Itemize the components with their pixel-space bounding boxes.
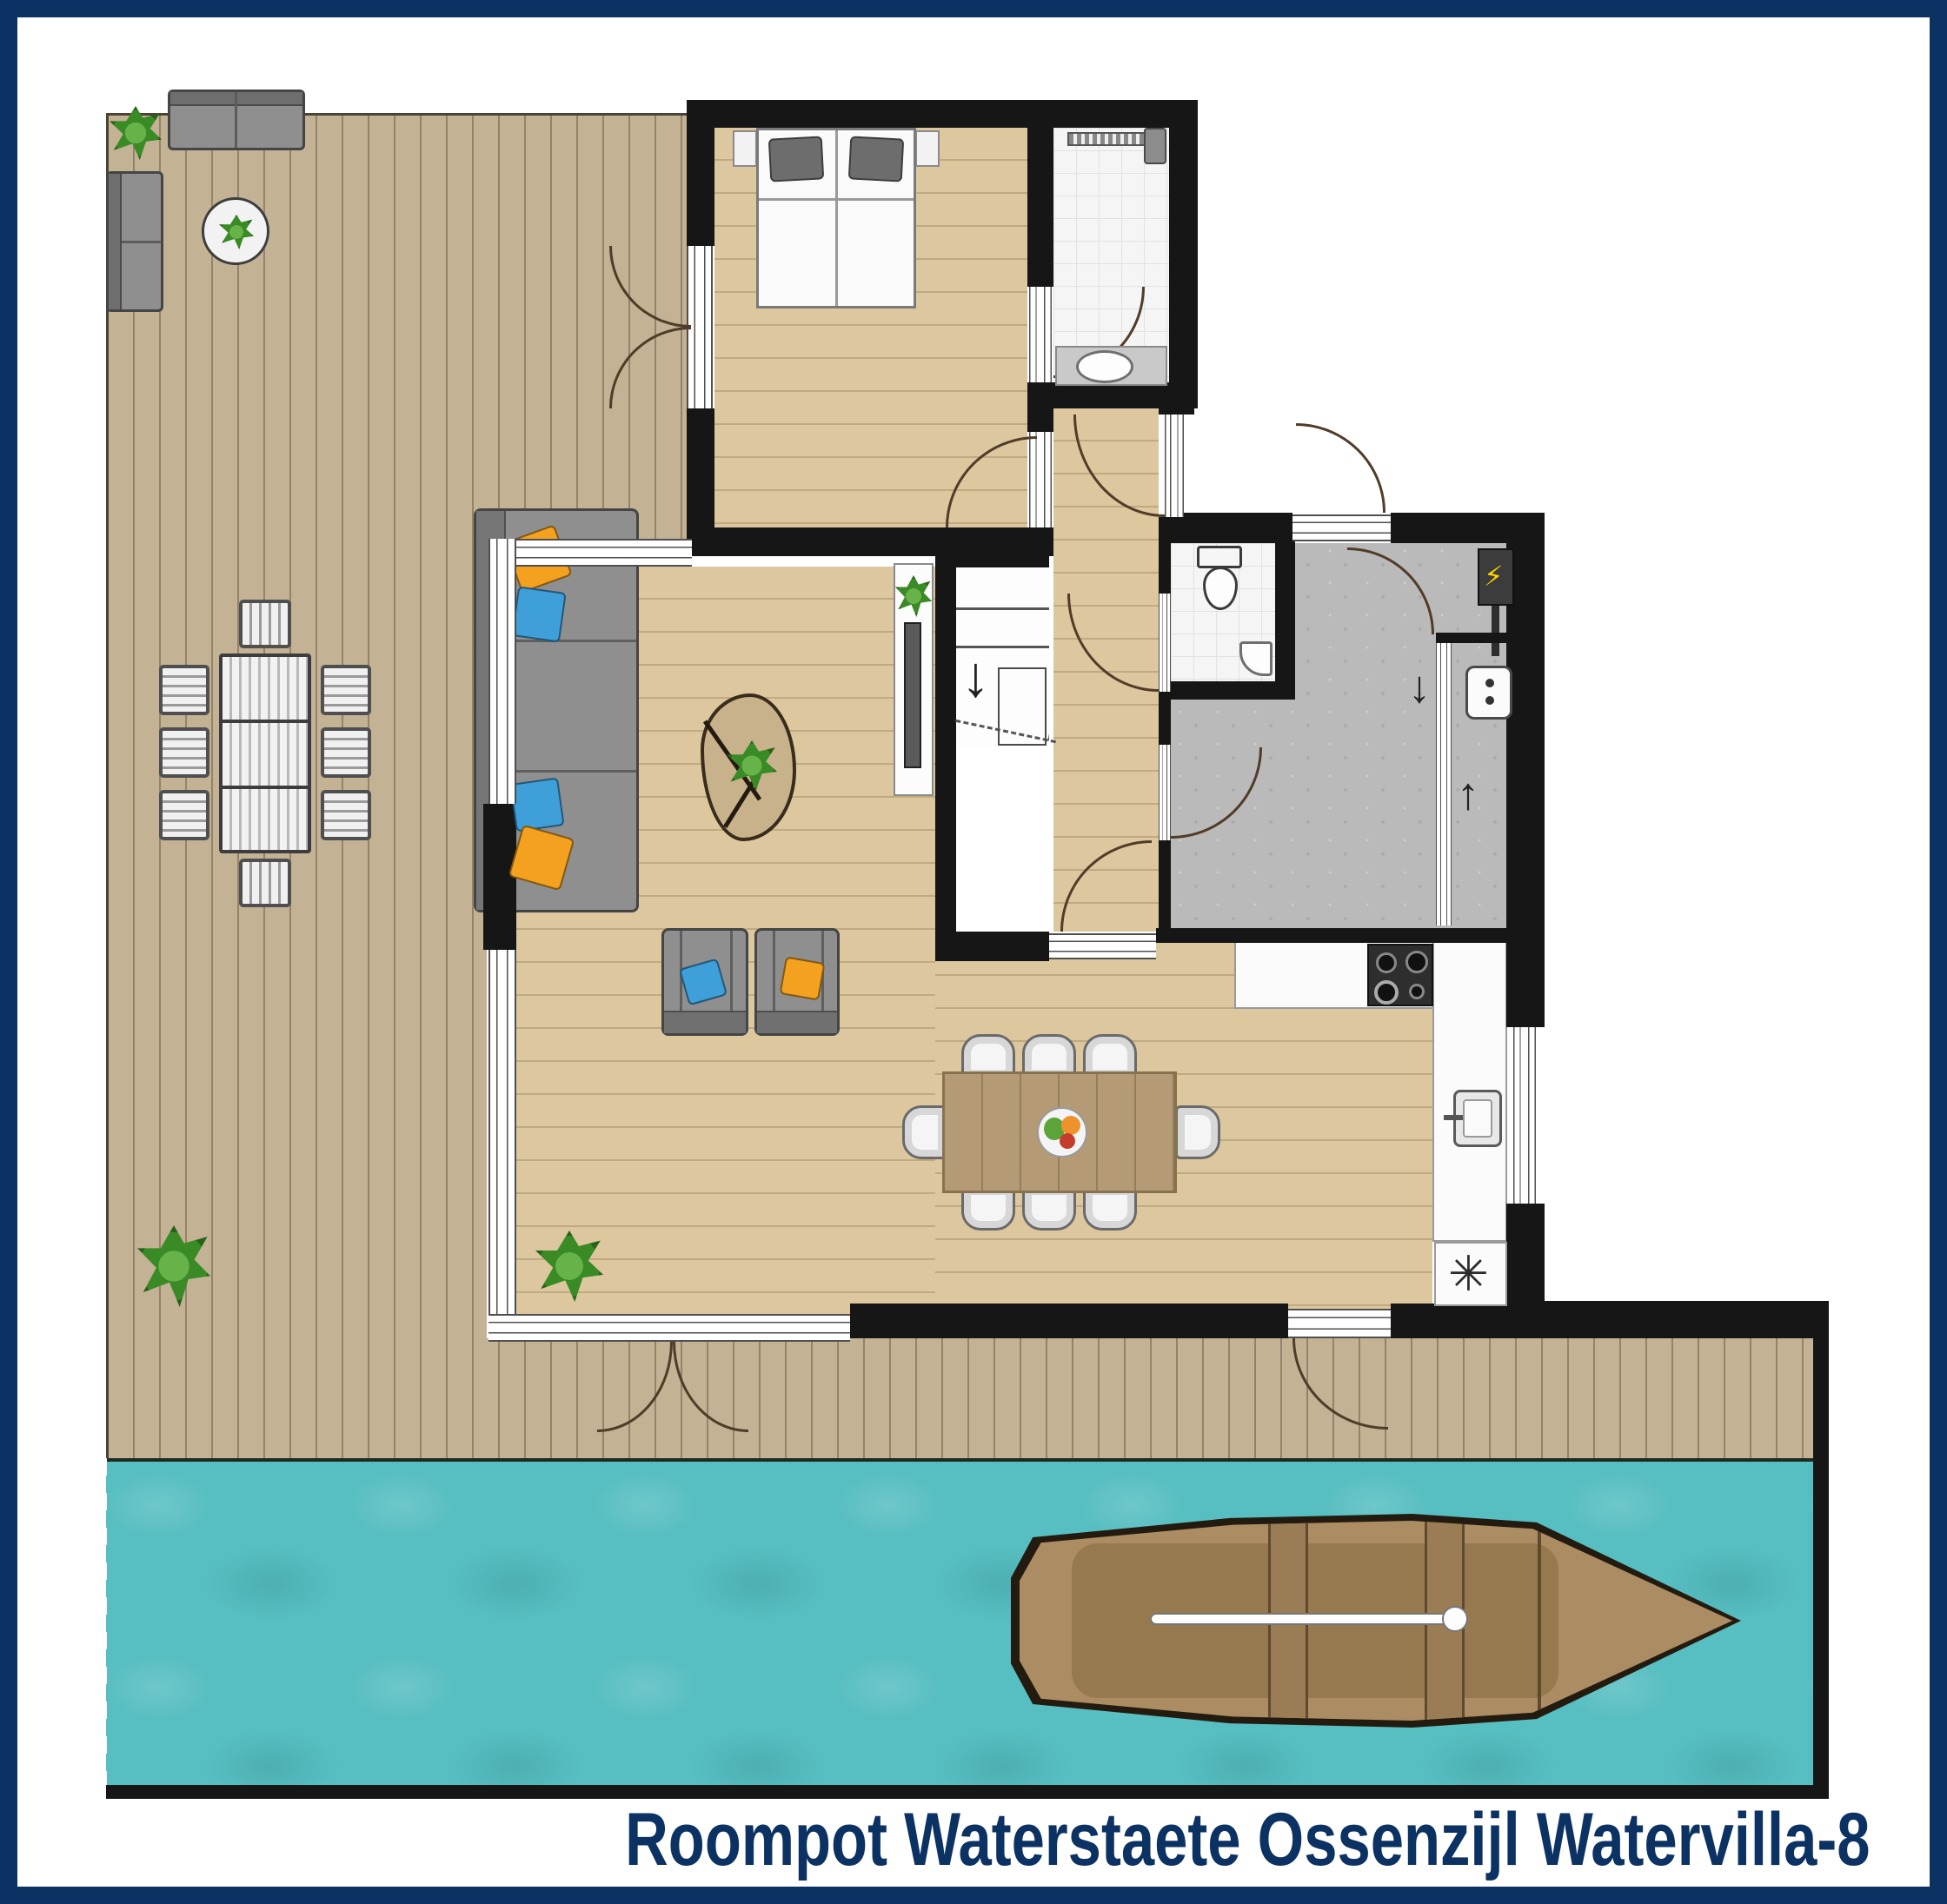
wall-toilet-west-a [1159, 538, 1171, 594]
wall-north [687, 100, 1198, 128]
toilet-cistern [1197, 546, 1242, 568]
nightstand-left [733, 130, 757, 167]
bay-window-south-a [488, 1314, 595, 1342]
front-door-frame [1292, 514, 1391, 541]
washing-machine: ✳ [1434, 1242, 1507, 1306]
wall-hall-south-east [1156, 928, 1506, 943]
bathroom-door-frame [1029, 287, 1052, 382]
sofa-pillow-blue-bottom [509, 777, 564, 832]
toilet-door-frame [1159, 594, 1171, 692]
outdoor-dining-table [219, 653, 311, 853]
deck-upper [106, 113, 687, 539]
boat-oar [1150, 1613, 1454, 1625]
dining-chair [902, 1105, 947, 1159]
wall-toilet-west-b [1159, 692, 1171, 745]
electrical-cable [1492, 606, 1499, 656]
wall-quay-east [1545, 1301, 1829, 1338]
boat-deck [1020, 1521, 1732, 1721]
sofa-pillow-blue-top [511, 586, 567, 642]
outdoor-chair [159, 727, 209, 778]
fruit-bowl [1037, 1107, 1087, 1158]
outdoor-chair [239, 600, 291, 648]
sliding-door [1436, 643, 1452, 925]
water-right-edge [1813, 1301, 1829, 1799]
double-bed [756, 128, 916, 308]
kitchen-sink [1453, 1090, 1502, 1147]
wall-west-upper [687, 128, 714, 246]
boat-bow-line [1538, 1521, 1541, 1721]
washing-machine-symbol: ✳ [1448, 1251, 1489, 1299]
boiler [1465, 666, 1512, 720]
outdoor-chair [239, 859, 291, 907]
lounge-sofa-left [106, 171, 163, 312]
outdoor-chair [159, 790, 209, 840]
caption-title: Roompot Waterstaete Ossenzijl Watervilla… [626, 1797, 1871, 1883]
boat-oar-blade [1442, 1606, 1468, 1632]
dining-hall-door-frame [1049, 933, 1156, 959]
wall-south-b [1391, 1304, 1545, 1338]
outdoor-chair [321, 790, 371, 840]
wall-east-lower [1506, 1204, 1545, 1304]
bay-window-west-upper [488, 539, 516, 804]
armchair-pillow-orange [780, 956, 826, 1000]
outdoor-chair [321, 727, 371, 778]
sliding-door-arrow-up: ↑ [1457, 772, 1479, 817]
wall-hall-east-a [1159, 387, 1194, 415]
dining-chair [1175, 1105, 1220, 1159]
lounge-sofa-top [168, 90, 305, 150]
wall-stairs-north [935, 539, 1049, 567]
wall-bed-bath-divider [1027, 100, 1053, 287]
bath-sink-basin [1076, 350, 1133, 383]
outdoor-chair [159, 665, 209, 715]
bed-pillow-right [848, 136, 905, 182]
vestibule-door-frame [1165, 415, 1184, 517]
wall-meter-cupboard [1436, 633, 1507, 643]
wall-toilet-north-patch [1171, 513, 1194, 543]
wall-utility-north-b [1391, 513, 1507, 543]
shower-fixture [1144, 128, 1166, 164]
tv [904, 622, 921, 768]
dining-table [942, 1071, 1177, 1193]
nightstand-right [915, 130, 940, 167]
water-left-dashed-edge [101, 1458, 107, 1788]
wall-west-lower [687, 408, 714, 539]
gas-hob [1367, 944, 1433, 1006]
outdoor-chair [321, 665, 371, 715]
bay-window-west-lower [488, 950, 516, 1317]
electrical-panel: ⚡ [1478, 548, 1514, 606]
electric-bolt-icon: ⚡ [1484, 562, 1503, 590]
sliding-door-arrow-down: ↓ [1408, 665, 1431, 710]
stairs-direction-arrow: ↓ [961, 647, 990, 705]
wall-bath-east [1169, 100, 1198, 408]
front-door-arc [1296, 423, 1385, 513]
terrace-door-frame [1288, 1309, 1391, 1338]
wall-stairs-west [935, 539, 956, 932]
bed-pillow-left [768, 136, 825, 182]
wall-utility-north-a [1194, 513, 1292, 543]
boat [1011, 1514, 1741, 1728]
bath-sink-counter [1055, 346, 1167, 386]
bay-window-south-b [751, 1314, 850, 1342]
wall-hall-south-west [935, 932, 1049, 961]
wall-toilet-south [1171, 681, 1295, 700]
shower-drain [1067, 132, 1151, 146]
deck-bottom-strip [106, 1338, 1813, 1458]
sink-faucet [1444, 1115, 1463, 1120]
kitchen-window [1513, 1027, 1536, 1204]
bay-window-north [488, 539, 692, 567]
utility-door-frame [1159, 745, 1171, 840]
floorplan-canvas: ↓ ↑ ↓ [0, 0, 1947, 1904]
wall-south-a [850, 1304, 1288, 1338]
bay-french-door-frame [595, 1314, 751, 1342]
wall-toilet-east [1275, 538, 1295, 700]
